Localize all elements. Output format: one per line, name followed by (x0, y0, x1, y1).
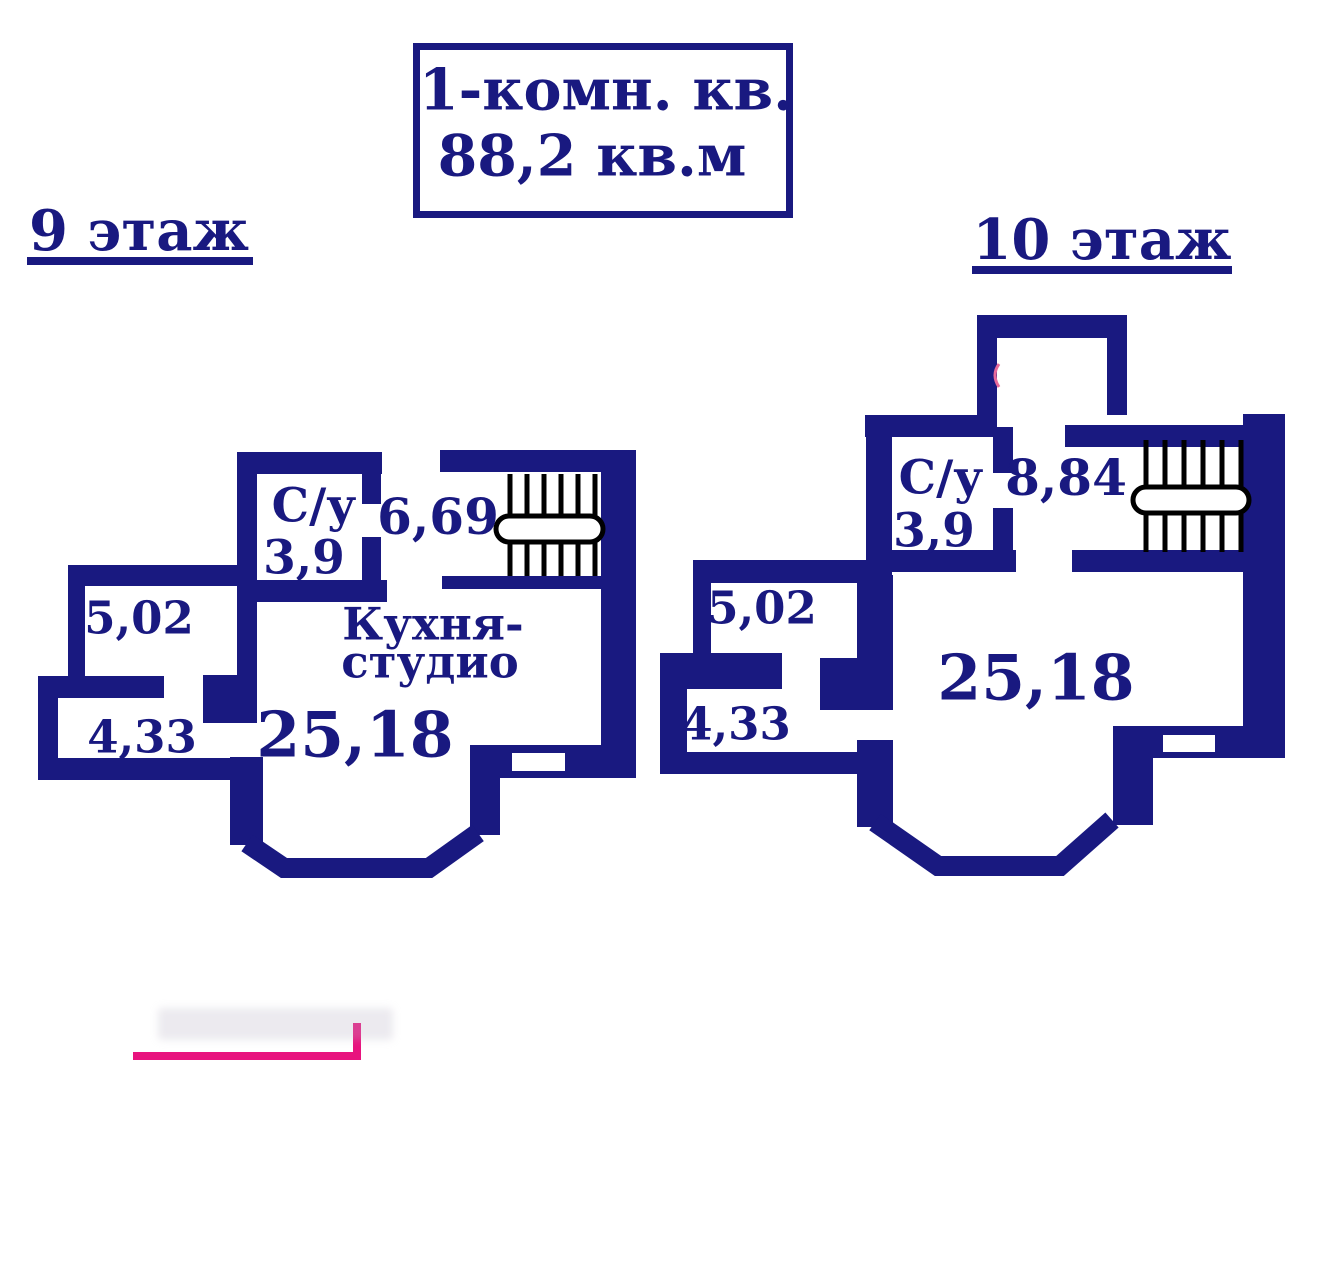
floor10-loggia-lower-area: 4,33 (681, 702, 791, 747)
floor9-kitchen-area: 25,18 (256, 704, 453, 767)
floor9-hall-area: 6,69 (377, 492, 499, 542)
floor9-bay-window-wall (247, 833, 478, 868)
floor9-label: 9 этаж (29, 203, 249, 259)
floor9-bathroom-label: С/у (272, 483, 357, 530)
floor10-label: 10 этаж (972, 212, 1231, 268)
floor9-label-underline (27, 257, 253, 265)
floor9-loggia-lower-area: 4,33 (87, 715, 197, 760)
erased-text-smudge (158, 1008, 393, 1040)
title-line1: 1-комн. кв. (419, 62, 793, 119)
floorplan-page: 1-комн. кв. 88,2 кв.м 9 этаж 10 этаж С/у… (0, 0, 1342, 1284)
floor9-kitchen-label-line2: студио (341, 640, 518, 685)
floor10-bathroom-label: С/у (899, 455, 984, 502)
floor9-loggia-upper-area: 5,02 (84, 596, 194, 641)
floor9-window (512, 753, 565, 771)
floor9-stairs-icon (496, 474, 603, 576)
floor10-main-room-area: 25,18 (937, 647, 1134, 710)
floor10-bay-window-wall (875, 820, 1112, 866)
floor10-loggia-upper-area: 5,02 (707, 586, 817, 631)
floor10-stairs-icon (1133, 440, 1249, 552)
floor10-bathroom-area: 3,9 (893, 508, 975, 555)
floor10-label-underline (972, 266, 1232, 274)
floor9-bathroom-area: 3,9 (263, 535, 345, 582)
floor10-window (1163, 735, 1215, 752)
title-line2: 88,2 кв.м (438, 128, 747, 185)
floor10-hall-area: 8,84 (1005, 453, 1127, 503)
